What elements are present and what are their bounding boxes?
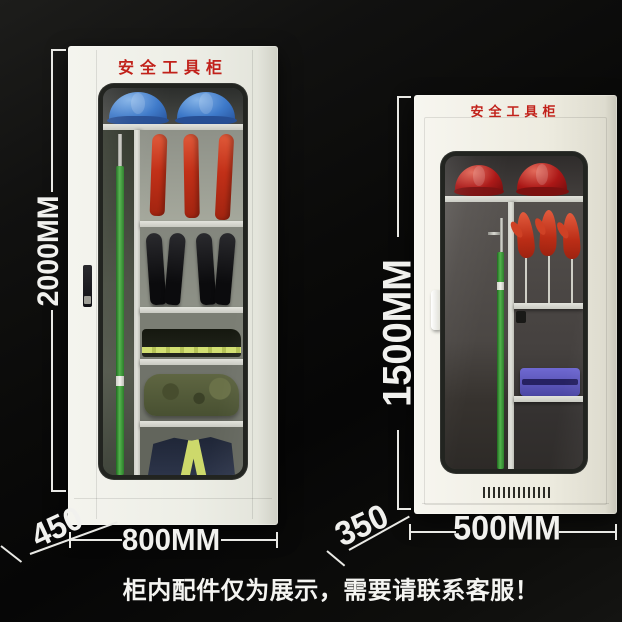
glass-window-frame [98,83,248,480]
rod-tip-icon [500,218,503,252]
insulated-glove-icon [539,210,558,257]
reflective-uniform-icon [148,437,235,475]
dim-line-width-large [221,539,277,541]
helmet-shelf-section [103,88,243,124]
cabinet-large-title: 安全工具柜 [68,54,278,78]
folded-clothes-section [140,313,243,359]
dim-tick [276,532,278,548]
dim-line-depth-small [326,550,345,566]
insulated-boots-icon [198,233,236,305]
rod-connector [116,376,124,386]
notice-caption: 柜内配件仅为展示，需要请联系客服！ [123,571,540,606]
dim-line-depth-large [0,545,22,563]
insulated-glove-icon [183,134,199,218]
dim-line-width-small [559,531,617,533]
glove-section [140,130,243,221]
product-showcase: 安全工具柜 [0,0,622,622]
glove-stand-post [525,258,527,303]
dim-tick [615,524,617,540]
shelf [514,396,583,402]
door-seam-bottom [74,498,272,499]
insulating-rod-icon [116,166,124,475]
dim-line-height-small [397,97,399,237]
rod-compartment [103,130,134,475]
insulated-glove-icon [150,134,168,216]
helmet-shelf-section [445,156,583,196]
door-seam-right [252,50,253,519]
red-helmet-icon [517,163,567,194]
rod-connector [497,282,504,290]
dim-tick [409,524,411,540]
dim-line-width-large [70,539,122,541]
boots-section [140,227,243,307]
dim-label-width-large: 800MM [122,522,220,558]
blue-helmet-icon [109,92,167,123]
uniform-section [140,427,243,475]
insulated-glove-icon [515,211,535,258]
shelving-column [140,130,243,475]
glass-window [103,88,243,475]
insulated-glove-icon [215,134,234,221]
dim-label-height-large: 2000MM [32,196,66,307]
door-seam-left [96,50,97,519]
dim-tick [51,490,66,492]
blue-helmet-icon [177,92,235,123]
insulated-boots-icon [148,233,184,305]
folded-workwear-icon [142,329,241,357]
shelf [514,303,583,309]
glass-window [445,156,583,469]
bag-section [140,365,243,421]
glass-window-frame [440,151,588,474]
cabinet-small: 安全工具柜 [414,95,617,514]
ventilation-grille-icon [483,487,551,498]
rod-compartment [445,202,508,469]
tool-bag-icon [144,374,239,416]
dim-tick [397,96,411,98]
rod-hook [488,232,500,235]
dim-line-width-small [410,531,456,533]
insulated-glove-icon [562,213,581,260]
door-seam-bottom [422,503,609,504]
tool-case-icon [520,368,580,396]
dim-line-height-large [51,50,53,192]
glove-stand-post [548,256,550,303]
small-black-item [516,311,526,323]
shelving-column [514,202,583,469]
dim-line-height-small [397,430,399,510]
dim-tick [51,49,66,51]
dim-label-height-small: 1500MM [376,259,421,407]
rod-tip-icon [118,134,122,166]
red-helmet-icon [455,165,503,194]
dim-label-width-small: 500MM [453,510,561,549]
glove-stand-post [571,259,573,303]
cabinet-large: 安全工具柜 [68,46,278,525]
dim-label-depth-small: 350 [329,497,394,555]
door-lock-handle [83,265,92,307]
dim-line-height-large [51,310,53,492]
dim-tick [397,508,411,510]
